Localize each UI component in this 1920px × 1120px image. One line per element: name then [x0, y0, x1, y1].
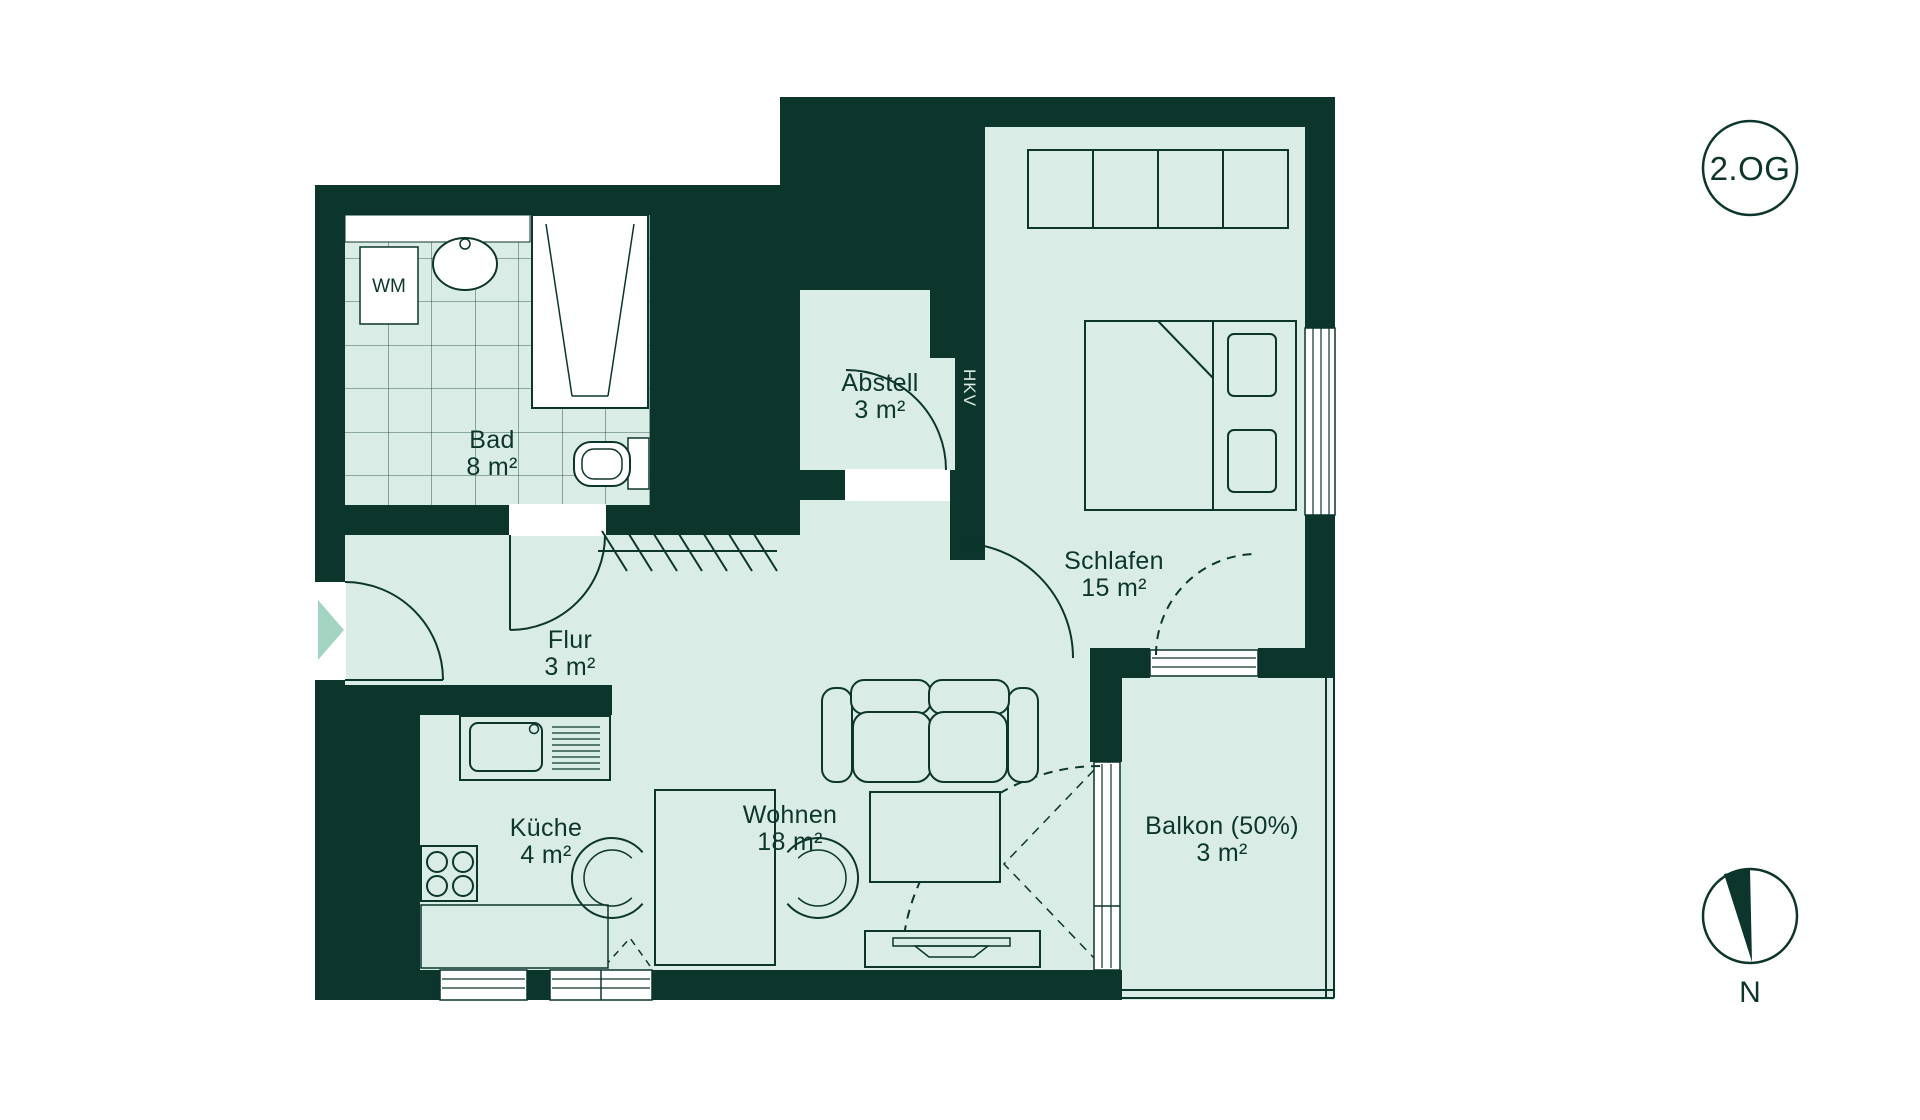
floor-plan: WM — [0, 0, 1920, 1120]
room-area-schlafen: 15 m² — [1081, 574, 1146, 602]
bath-sink-icon — [433, 238, 497, 290]
wardrobe — [1028, 150, 1288, 228]
bed — [1085, 321, 1296, 510]
bath-door-opening — [509, 504, 606, 536]
room-area-bad: 8 m² — [466, 453, 517, 481]
room-label-abstell: Abstell — [841, 369, 918, 397]
pillow-top — [1228, 334, 1276, 396]
tv-sideboard — [865, 931, 1040, 967]
bedroom-window — [1305, 328, 1335, 515]
toilet-icon — [574, 438, 649, 489]
washing-machine: WM — [360, 247, 418, 324]
room-label-flur: Flur — [548, 626, 592, 654]
kitchen-sink-unit — [460, 716, 610, 780]
washing-machine-label: WM — [372, 276, 406, 297]
room-area-balkon: 3 m² — [1196, 839, 1247, 867]
floor-badge: 2.OG — [1703, 121, 1797, 215]
compass-north-label: N — [1739, 976, 1761, 1009]
bath-shelf — [345, 215, 530, 242]
room-area-flur: 3 m² — [544, 653, 595, 681]
sofa — [822, 680, 1038, 782]
room-label-balkon: Balkon (50%) — [1145, 812, 1299, 840]
room-label-schlafen: Schlafen — [1064, 547, 1164, 575]
kitchen-counter — [421, 905, 608, 968]
storage-door-opening — [845, 469, 950, 501]
floor-badge-label: 2.OG — [1710, 150, 1791, 187]
stove-icon — [421, 846, 477, 901]
compass-icon: N — [1703, 869, 1797, 1009]
room-area-abstell: 3 m² — [854, 396, 905, 424]
pillow-bottom — [1228, 430, 1276, 492]
hkv-label: HKV — [960, 369, 979, 407]
room-label-bad: Bad — [469, 426, 514, 454]
coffee-table — [870, 792, 1000, 882]
room-label-kueche: Küche — [510, 814, 582, 842]
room-area-wohnen: 18 m² — [757, 828, 822, 856]
tv-icon — [893, 938, 1010, 946]
room-label-wohnen: Wohnen — [743, 801, 837, 829]
shower-icon — [532, 215, 648, 408]
room-area-kueche: 4 m² — [520, 841, 571, 869]
floor-plan-page: WM — [0, 0, 1920, 1120]
